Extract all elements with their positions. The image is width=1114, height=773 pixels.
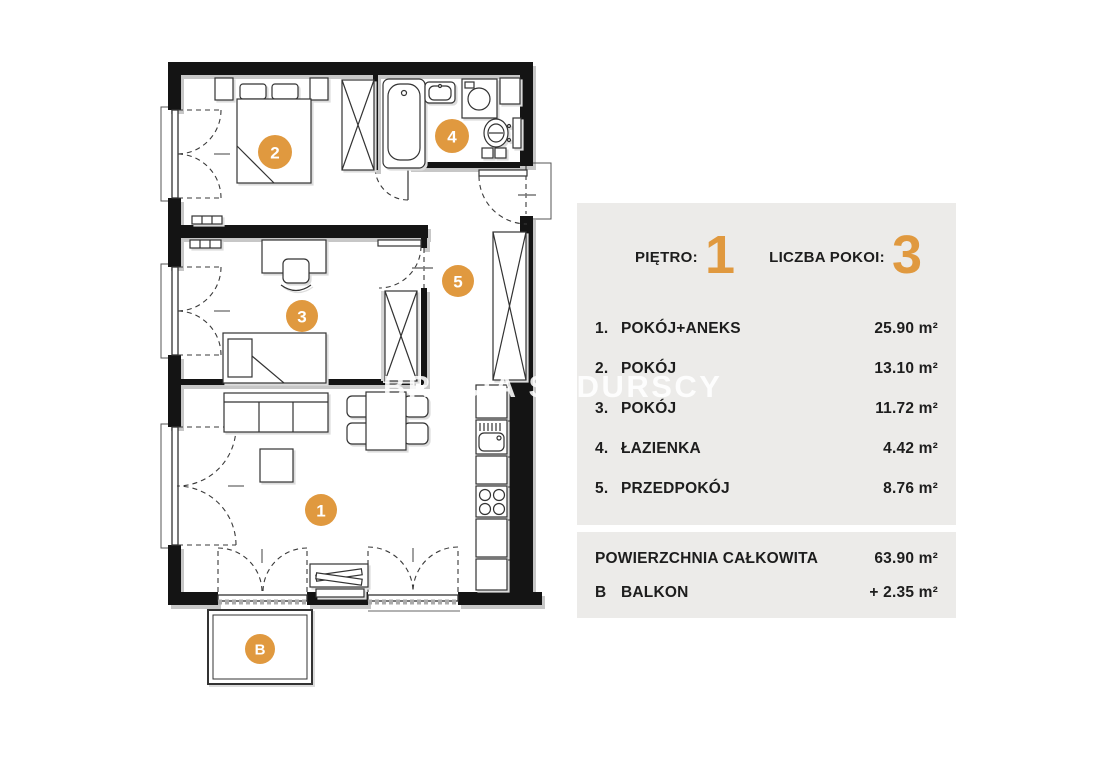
room-marker-3: 3 [286,300,318,332]
room-row-area: 4.42 m² [883,440,938,458]
floor-group: PIĘTRO: 1 [635,231,735,279]
room-row-area: 11.72 m² [875,400,938,418]
balcony-area-value: + 2.35 m² [869,584,938,602]
room-row: 4. ŁAZIENKA 4.42 m² [595,429,938,469]
floor-value: 1 [705,231,735,279]
room-row: 1. POKÓJ+ANEKS 25.90 m² [595,309,938,349]
svg-text:4: 4 [447,128,457,147]
balcony-label: BALKON [621,584,869,602]
info-panel: PIĘTRO: 1 LICZBA POKOI: 3 1. POKÓJ+ANEKS… [577,203,956,525]
kitchen-units [476,385,507,590]
agency-watermark: BRACIA SADURSCY [383,369,722,405]
svg-text:3: 3 [297,308,306,327]
room-row-name: POKÓJ+ANEKS [621,320,874,338]
total-area-label: POWIERZCHNIA CAŁKOWITA [595,550,874,568]
floor-label: PIĘTRO: [635,245,698,266]
balcony-key: B [595,584,621,602]
rooms-count-group: LICZBA POKOI: 3 [769,231,922,279]
rooms-count-value: 3 [892,231,922,279]
room-row: 5. PRZEDPOKÓJ 8.76 m² [595,469,938,509]
room-marker-2: 2 [258,135,292,169]
room-row-number: 4. [595,440,621,458]
totals-panel: POWIERZCHNIA CAŁKOWITA 63.90 m² B BALKON… [577,532,956,618]
room-row-number: 1. [595,320,621,338]
balcony-row: B BALKON + 2.35 m² [595,580,938,606]
room-list: 1. POKÓJ+ANEKS 25.90 m² 2. POKÓJ 13.10 m… [595,309,938,509]
svg-text:2: 2 [270,144,279,163]
room-marker-5: 5 [442,265,474,297]
room-row-area: 25.90 m² [874,320,938,338]
balcony-marker: B [245,634,275,664]
svg-text:1: 1 [316,502,325,521]
room-row-name: PRZEDPOKÓJ [621,480,883,498]
room-row-area: 8.76 m² [883,480,938,498]
room-row-area: 13.10 m² [874,360,938,378]
room-row-number: 5. [595,480,621,498]
svg-text:5: 5 [453,273,462,292]
rooms-count-label: LICZBA POKOI: [769,245,885,266]
room-marker-4: 4 [435,119,469,153]
panel-header: PIĘTRO: 1 LICZBA POKOI: 3 [595,227,938,283]
room-marker-1: 1 [305,494,337,526]
hallway-furniture [493,232,526,380]
floor-plan-page: 1 2 3 4 5 B BRACIA SA [0,0,1114,773]
svg-text:B: B [255,642,266,659]
livingroom-furniture [224,392,428,597]
total-area-value: 63.90 m² [874,550,938,568]
total-area-row: POWIERZCHNIA CAŁKOWITA 63.90 m² [595,546,938,572]
room-row-name: ŁAZIENKA [621,440,883,458]
